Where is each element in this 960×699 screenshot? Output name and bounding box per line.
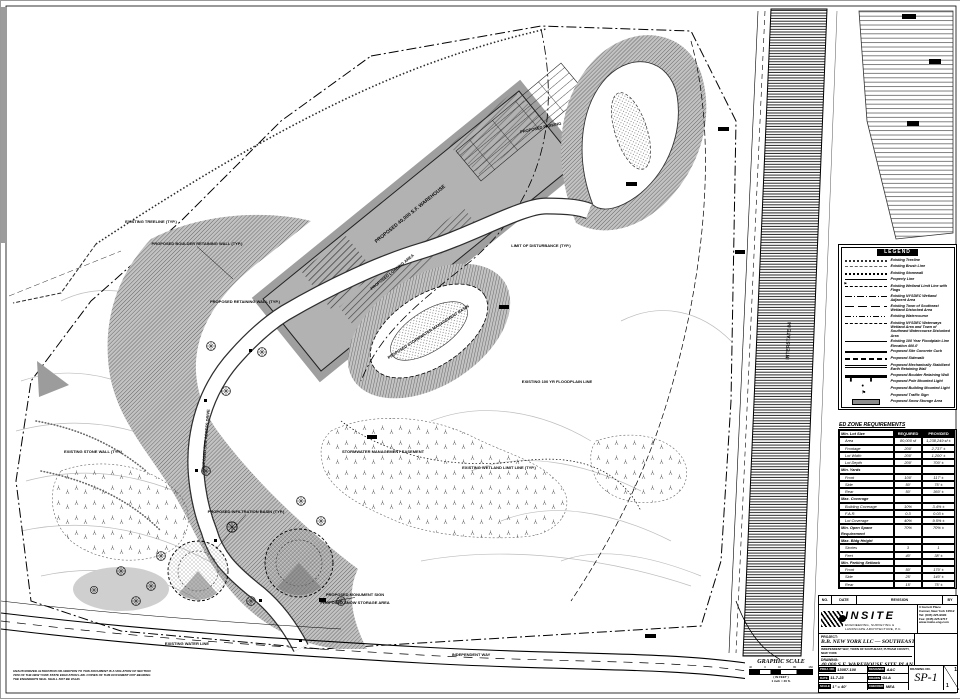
legend-row: Proposed Snow Storage Area (844, 399, 952, 404)
zone-row-provided: 38' ± (922, 552, 955, 559)
zone-row-required: 15' (894, 581, 922, 588)
legend-label: Existing 100 Year Floodplain Line Elevat… (891, 339, 952, 348)
info-grid: PROJ. NO.13087.100 DATE11-7-23 SCALE1" =… (819, 666, 957, 690)
zone-row-provided: 3.4% ± (922, 503, 955, 510)
zone-row-provided (922, 537, 955, 544)
legend-row: Proposed Building Mounted Light (844, 386, 952, 391)
legend-label: Existing Brush Line (891, 264, 926, 268)
legend-label: Proposed Site Concrete Curb (891, 349, 942, 353)
legend-label: Existing Watercourse (891, 314, 929, 318)
zone-table-row: Rear50'360' ± (839, 488, 956, 495)
legend-row: Proposed Sidewalk (844, 356, 952, 361)
sheet-top: 1 (954, 667, 957, 673)
zone-row-name: Rear (839, 488, 894, 495)
zone-row-provided: 170' ± (922, 566, 955, 573)
zone-row-provided: 0.03 ± (922, 510, 955, 517)
zone-row-required (894, 466, 922, 473)
plan-label: EXISTING TREELINE (TYP.) (125, 219, 177, 224)
plan-label: PROPOSED MONUMENT SIGN (326, 592, 384, 597)
zone-row-required: 40' (894, 552, 922, 559)
drawing-no-value: SP-1 (914, 671, 937, 683)
zone-row-required: 200' (894, 452, 922, 459)
zone-row-required: 200' (894, 445, 922, 452)
legend-row: Existing 100 Year Floodplain Line Elevat… (844, 339, 952, 348)
date-value: 11-7-23 (830, 675, 844, 680)
designed-label: DESIGNED (868, 667, 885, 672)
firm-name-block: INSITE ENGINEERING, SURVEYING & LANDSCAP… (845, 606, 902, 631)
zone-row-name: Lot Width (839, 452, 894, 459)
msewall-symbol (844, 363, 888, 368)
proj-no-value: 13087.100 (837, 667, 856, 672)
zone-table-row: Max. Bldg Height (839, 537, 956, 544)
zone-row-provided: 2,737' ± (922, 445, 955, 452)
floodplain-symbol (844, 339, 888, 344)
tos-wetland-symbol (844, 304, 888, 309)
drawn-label: DRAWN (868, 676, 881, 681)
legend-label: Proposed Mechanically Stabilized Earth R… (891, 363, 952, 372)
bottom-road (1, 601, 749, 679)
zone-row-required: 50' (894, 488, 922, 495)
scale-label: SCALE (819, 684, 831, 689)
highway-corridor (729, 9, 837, 671)
plan-label: LIMIT OF DISTURBANCE (TYP.) (511, 243, 571, 248)
zone-row-name: Side (839, 573, 894, 580)
zone-row-name: Min. Parking Setback (839, 559, 894, 566)
scale-tick: 40 (778, 665, 781, 669)
zone-row-name: Stories (839, 544, 894, 551)
legend-label: Existing Treeline (891, 258, 920, 262)
property-symbol (844, 277, 888, 282)
legend-row: Proposed Mechanically Stabilized Earth R… (844, 363, 952, 372)
firm-tagline-2: LANDSCAPE ARCHITECTURE, P.C. (845, 628, 902, 632)
zone-table-panel: ED ZONE REQUIREMENTS Min. Lot SizeREQUIR… (838, 422, 957, 589)
legend-label: Existing NYSDEC Waterways Wetland Area a… (891, 321, 952, 338)
zone-table-row: Min. Open Space Requirement70%70% ± (839, 524, 956, 537)
zone-table-row: Feet40'38' ± (839, 552, 956, 559)
zone-table-row: Front100'117' ± (839, 474, 956, 481)
zone-table-row: Stories31 (839, 544, 956, 551)
zone-row-required: 25' (894, 573, 922, 580)
scale-tick: 40 (749, 665, 752, 669)
plan-label: PROPOSED SNOW STORAGE AREA (320, 600, 389, 605)
zone-row-required (894, 495, 922, 502)
scale-tick: 0 (764, 665, 766, 669)
zone-table-row: Min. Parking Setback (839, 559, 956, 566)
legend-row: Existing NYSDEC Wetland Adjacent Area (844, 294, 952, 303)
proj-no-label: PROJ. NO. (819, 667, 836, 672)
legend-row: Existing Town of Southeast Wetland Distu… (844, 304, 952, 313)
legend-row: Existing Brush Line (844, 264, 952, 269)
legend-label: Proposed Boulder Retaining Wall (891, 373, 949, 377)
zone-row-provided: PROVIDED (922, 430, 955, 437)
firm-address: 3 Garrett Place Carmel, New York 10512 T… (917, 605, 957, 633)
zone-row-provided: 117' ± (922, 474, 955, 481)
graphic-scale-ratio: 1 inch = 40 ft. (745, 679, 817, 683)
zone-table-row: Side25'140' ± (839, 573, 956, 580)
zone-row-provided: 75' ± (922, 481, 955, 488)
zone-row-name: Front (839, 474, 894, 481)
title-block: NO. DATE REVISION BY INSITE ENGINEERING,… (818, 595, 958, 693)
legend-label: Existing NYSDEC Wetland Adjacent Area (891, 294, 952, 303)
stonewall-symbol (844, 271, 888, 276)
zone-table-row: Min. Yards (839, 466, 956, 473)
zone-row-required: 70% (894, 524, 922, 537)
firm-row: INSITE ENGINEERING, SURVEYING & LANDSCAP… (819, 605, 957, 634)
treeline-symbol (844, 258, 888, 263)
addr-line: www.insite-eng.com (919, 621, 956, 625)
legend-row: Proposed Pole Mounted Light (844, 379, 952, 384)
zone-row-name: F.A.R. (839, 510, 894, 517)
zone-row-required: 50' (894, 481, 922, 488)
curb-symbol (844, 349, 888, 354)
legend-label: Property Line (891, 277, 915, 281)
zone-table-row: F.A.R.0.30.03 ± (839, 510, 956, 517)
zone-row-provided: 75' ± (922, 581, 955, 588)
zone-row-name: Front (839, 566, 894, 573)
zone-table-row: Side50'75' ± (839, 481, 956, 488)
zone-row-required: REQUIRED (894, 430, 922, 437)
wetflag-symbol (844, 284, 888, 289)
scale-value: 1" = 40' (832, 684, 846, 689)
legend-label: Proposed Sidewalk (891, 356, 925, 360)
legend-label: Existing Stonewall (891, 271, 924, 275)
legend-row: Existing Watercourse (844, 314, 952, 319)
zone-table-row: Lot Depth200'700' ± (839, 459, 956, 466)
legend-label: Proposed Traffic Sign (891, 393, 929, 397)
legend-row: Existing Stonewall (844, 271, 952, 276)
zone-row-required: 0.3 (894, 510, 922, 517)
plan-label: PROPOSED RETAINING WALL (TYP.) (210, 299, 281, 304)
zone-table-row: Front50'170' ± (839, 566, 956, 573)
zone-row-name: Rear (839, 581, 894, 588)
plan-label: EXISTING 100 YR FLOODPLAIN LINE (522, 379, 593, 384)
legend-inner: LEGEND Existing TreelineExisting Brush L… (841, 247, 955, 408)
plan-label: PROPOSED BOULDER RETAINING WALL (TYP.) (152, 241, 244, 246)
zone-row-name: Min. Yards (839, 466, 894, 473)
project-name: B.B. NEW YORK LLC — SOUTHEAST (821, 639, 914, 647)
brushline-symbol (844, 264, 888, 269)
zone-table-row: Area80,000 sf1,238,249 sf ± (839, 437, 956, 444)
legend-row: Existing Wetland Limit Line with Flags (844, 284, 952, 293)
zone-row-name: Feet (839, 552, 894, 559)
revision-strip: NO. DATE REVISION BY (819, 596, 957, 605)
project-info: PROJECT: B.B. NEW YORK LLC — SOUTHEAST I… (819, 634, 914, 665)
zone-row-provided: 360' ± (922, 488, 955, 495)
stamp-area (914, 634, 957, 665)
north-arrow (37, 361, 69, 397)
project-row: PROJECT: B.B. NEW YORK LLC — SOUTHEAST I… (819, 634, 957, 666)
plan-label: EXISTING STONE WALL (TYP.) (64, 449, 123, 454)
firm-name: INSITE (845, 610, 895, 622)
zone-row-name: Min. Lot Size (839, 430, 894, 437)
zone-table-row: Rear15'75' ± (839, 581, 956, 588)
zone-row-name: Min. Open Space Requirement (839, 524, 894, 537)
project-location: INDEPENDENT WAY, TOWN OF SOUTHEAST, PUTN… (821, 648, 912, 657)
zone-table-title: ED ZONE REQUIREMENTS (839, 422, 957, 428)
zone-row-provided: 700' ± (922, 459, 955, 466)
legend-row: Existing Treeline (844, 258, 952, 263)
rev-by-header: BY (943, 596, 957, 604)
zone-row-required: 100' (894, 474, 922, 481)
legend-title: LEGEND (877, 249, 918, 256)
zone-row-provided: 70% ± (922, 524, 955, 537)
date-label: DATE (819, 676, 829, 681)
zone-table-row: Max. Coverage (839, 495, 956, 502)
zone-row-provided (922, 559, 955, 566)
drawn-value: GLA (882, 675, 890, 680)
firm-logo: INSITE ENGINEERING, SURVEYING & LANDSCAP… (819, 606, 917, 631)
zone-row-provided (922, 466, 955, 473)
zone-row-provided (922, 495, 955, 502)
legend-row: Existing NYSDEC Waterways Wetland Area a… (844, 321, 952, 338)
adjacent-parking-lot (859, 11, 953, 239)
scale-tick: 80 (793, 665, 796, 669)
zone-row-required: 50' (894, 566, 922, 573)
zone-table-row: Building Coverage10%3.4% ± (839, 503, 956, 510)
legend-label: Existing Wetland Limit Line with Flags (891, 284, 952, 293)
legend-label: Existing Town of Southeast Wetland Distu… (891, 304, 952, 313)
zone-row-name: Max. Bldg Height (839, 537, 894, 544)
sheet-bottom: 1 (946, 683, 949, 689)
checked-label: CHECKED (868, 684, 884, 689)
plan-label: INDEPENDENT WAY (452, 652, 491, 657)
zone-row-required: 80,000 sf (894, 437, 922, 444)
zone-table-row: Frontage200'2,737' ± (839, 445, 956, 452)
plan-label: EXISTING WATER LINE (165, 641, 209, 646)
zone-row-name: Building Coverage (839, 503, 894, 510)
drawing-number-cell: DRAWING NO. SP-1 (909, 666, 944, 690)
trafficsign-symbol (844, 393, 888, 398)
plan-label: PROPOSED INFILTRATION BASIN (TYP.) (208, 509, 285, 514)
legend-row: Proposed Site Concrete Curb (844, 349, 952, 354)
adjacent-symbol (844, 294, 888, 299)
legend-row: Property Line (844, 277, 952, 282)
left-edge-strip (1, 7, 7, 243)
zone-row-required (894, 537, 922, 544)
legend-label: Proposed Building Mounted Light (891, 386, 950, 390)
zone-row-name: Lot Depth (839, 459, 894, 466)
scale-tick: 160 (808, 665, 813, 669)
legend-row: Proposed Traffic Sign (844, 393, 952, 398)
zone-table: Min. Lot SizeREQUIREDPROVIDEDArea80,000 … (838, 429, 957, 589)
zone-row-provided: 9.5% ± (922, 517, 955, 524)
sidewalk-symbol (844, 356, 888, 361)
checked-value: MEA (886, 684, 895, 689)
legend-panel: LEGEND Existing TreelineExisting Brush L… (838, 244, 957, 410)
zone-row-required (894, 559, 922, 566)
zone-row-required: 10% (894, 503, 922, 510)
legend-label: Proposed Pole Mounted Light (891, 379, 943, 383)
zone-row-name: Lot Coverage (839, 517, 894, 524)
credits-cell: DESIGNEDAAC DRAWNGLA CHECKEDMEA (868, 666, 909, 690)
zone-table-row: Min. Lot SizeREQUIREDPROVIDED (839, 430, 956, 437)
zone-row-required: 40% (894, 517, 922, 524)
zone-row-required: 200' (894, 459, 922, 466)
insite-logo-icon (821, 611, 843, 627)
zone-row-provided: 1,238,249 sf ± (922, 437, 955, 444)
note-line: THE ENGINEER'S SEAL SHALL NOT BE VALID. (13, 678, 151, 682)
designed-value: AAC (887, 667, 896, 672)
alteration-note: UNAUTHORIZED ALTERATION OR ADDITION TO T… (13, 670, 151, 682)
legend-rows: Existing TreelineExisting Brush LineExis… (844, 258, 952, 405)
zone-table-row: Lot Width200'1,200' ± (839, 452, 956, 459)
zone-row-provided: 1 (922, 544, 955, 551)
zone-row-name: Max. Coverage (839, 495, 894, 502)
rev-no-header: NO. (819, 596, 832, 604)
sheet-number-cell: 1 1 (944, 666, 959, 690)
plan-label: STORMWATER MANAGEMENT EASEMENT (342, 449, 425, 454)
zone-row-provided: 1,200' ± (922, 452, 955, 459)
zone-row-name: Side (839, 481, 894, 488)
proj-date-scale-cell: PROJ. NO.13087.100 DATE11-7-23 SCALE1" =… (819, 666, 868, 690)
zone-row-name: Area (839, 437, 894, 444)
nysdec-symbol (844, 321, 888, 326)
graphic-scale: GRAPHIC SCALE 4004080160 ( IN FEET ) 1 i… (745, 659, 817, 683)
snow-symbol (844, 399, 888, 404)
legend-label: Proposed Snow Storage Area (891, 399, 943, 403)
watercourse-symbol (844, 314, 888, 319)
site-plan-canvas: PROPOSED BOULDER RETAINING WALL (TYP.)PR… (1, 1, 960, 698)
zone-row-name: Frontage (839, 445, 894, 452)
zone-table-row: Lot Coverage40%9.5% ± (839, 517, 956, 524)
drawing-name: 40,000 S.F. WAREHOUSE SITE PLAN (821, 662, 913, 665)
zone-row-provided: 140' ± (922, 573, 955, 580)
zone-row-required: 3 (894, 544, 922, 551)
rev-revision-header: REVISION (857, 596, 943, 604)
rev-date-header: DATE (832, 596, 857, 604)
drawing-sheet: PROPOSED BOULDER RETAINING WALL (TYP.)PR… (0, 0, 960, 699)
plan-label: EXISTING WETLAND LIMIT LINE (TYP.) (462, 465, 536, 470)
